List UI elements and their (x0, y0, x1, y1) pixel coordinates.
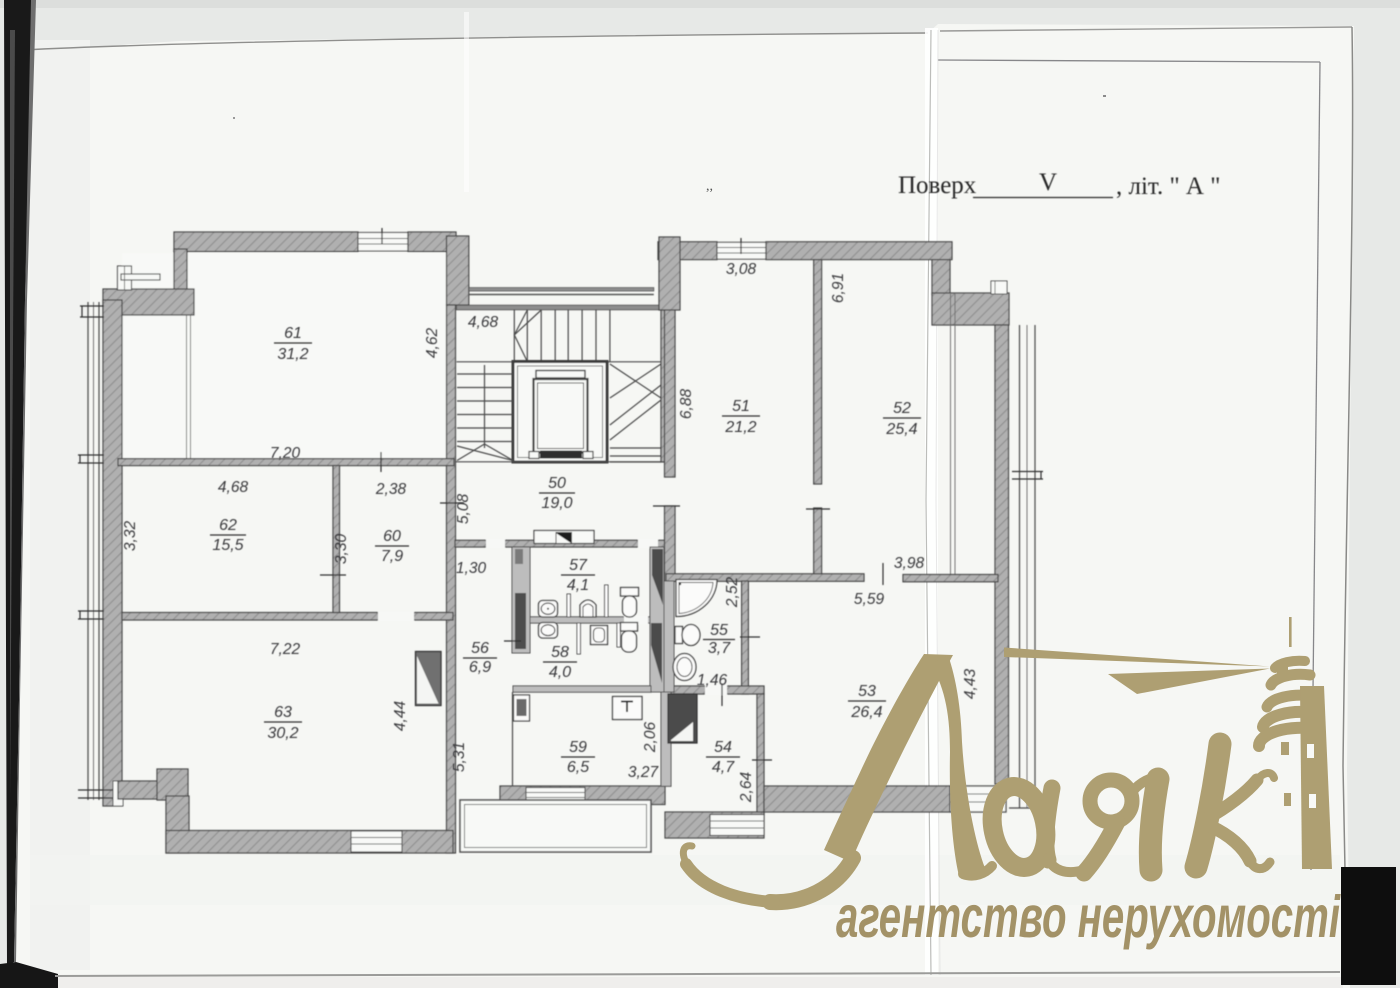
svg-text:3,32: 3,32 (122, 521, 139, 552)
svg-text:57: 57 (569, 557, 588, 574)
svg-text:4,62: 4,62 (424, 328, 441, 359)
svg-text:5,08: 5,08 (455, 494, 472, 525)
svg-text:6,5: 6,5 (567, 759, 589, 776)
svg-text:58: 58 (551, 644, 569, 661)
svg-text:7,20: 7,20 (270, 445, 301, 462)
svg-text:5,31: 5,31 (451, 742, 468, 772)
svg-text:1,46: 1,46 (697, 672, 728, 689)
svg-text:59: 59 (569, 739, 587, 756)
svg-text:62: 62 (219, 517, 237, 534)
svg-text:4,68: 4,68 (218, 479, 249, 496)
svg-text:61: 61 (284, 325, 302, 342)
svg-text:30,2: 30,2 (267, 725, 298, 742)
svg-text:Поверх: Поверх (898, 172, 977, 199)
svg-text:6,91: 6,91 (830, 273, 847, 303)
svg-text:19,0: 19,0 (541, 495, 572, 512)
svg-text:, літ. " А ": , літ. " А " (1116, 173, 1220, 200)
svg-text:51: 51 (732, 398, 750, 415)
svg-text:1,30: 1,30 (456, 560, 487, 577)
svg-text:4,0: 4,0 (549, 664, 571, 681)
svg-text:3,98: 3,98 (894, 555, 925, 572)
svg-text:3,30: 3,30 (333, 534, 350, 565)
svg-text:26,4: 26,4 (850, 704, 882, 721)
svg-text:7,9: 7,9 (381, 548, 403, 565)
svg-text:52: 52 (893, 400, 911, 417)
svg-text:4,68: 4,68 (468, 314, 499, 331)
svg-text:25,4: 25,4 (885, 421, 917, 438)
svg-text:53: 53 (858, 683, 876, 700)
svg-text:55: 55 (710, 622, 728, 639)
svg-text:5,59: 5,59 (854, 591, 885, 608)
svg-text:7,22: 7,22 (270, 641, 301, 658)
svg-text:31,2: 31,2 (277, 346, 308, 363)
svg-text:2,52: 2,52 (724, 577, 741, 609)
svg-text:50: 50 (548, 475, 566, 492)
svg-text:60: 60 (383, 528, 401, 545)
svg-text:6,88: 6,88 (678, 389, 695, 420)
svg-text:56: 56 (471, 640, 489, 657)
svg-text:,,: ,, (706, 179, 713, 194)
svg-text:агентство нерухомості: агентство нерухомості (836, 884, 1341, 950)
svg-text:2,64: 2,64 (738, 772, 755, 804)
svg-text:4,7: 4,7 (712, 759, 735, 776)
svg-text:54: 54 (714, 739, 732, 756)
svg-text:2,38: 2,38 (375, 481, 407, 498)
svg-text:21,2: 21,2 (724, 419, 756, 436)
svg-text:63: 63 (274, 704, 292, 721)
svg-text:4,43: 4,43 (962, 669, 979, 700)
svg-text:4,1: 4,1 (567, 577, 589, 594)
svg-text:3,7: 3,7 (708, 640, 731, 657)
svg-text:6,9: 6,9 (469, 659, 491, 676)
svg-text:2,06: 2,06 (642, 722, 659, 754)
svg-text:V: V (1039, 169, 1057, 196)
svg-text:3,08: 3,08 (726, 261, 757, 278)
svg-text:15,5: 15,5 (212, 537, 243, 554)
svg-text:4,44: 4,44 (392, 701, 409, 732)
svg-text:3,27: 3,27 (628, 764, 660, 781)
